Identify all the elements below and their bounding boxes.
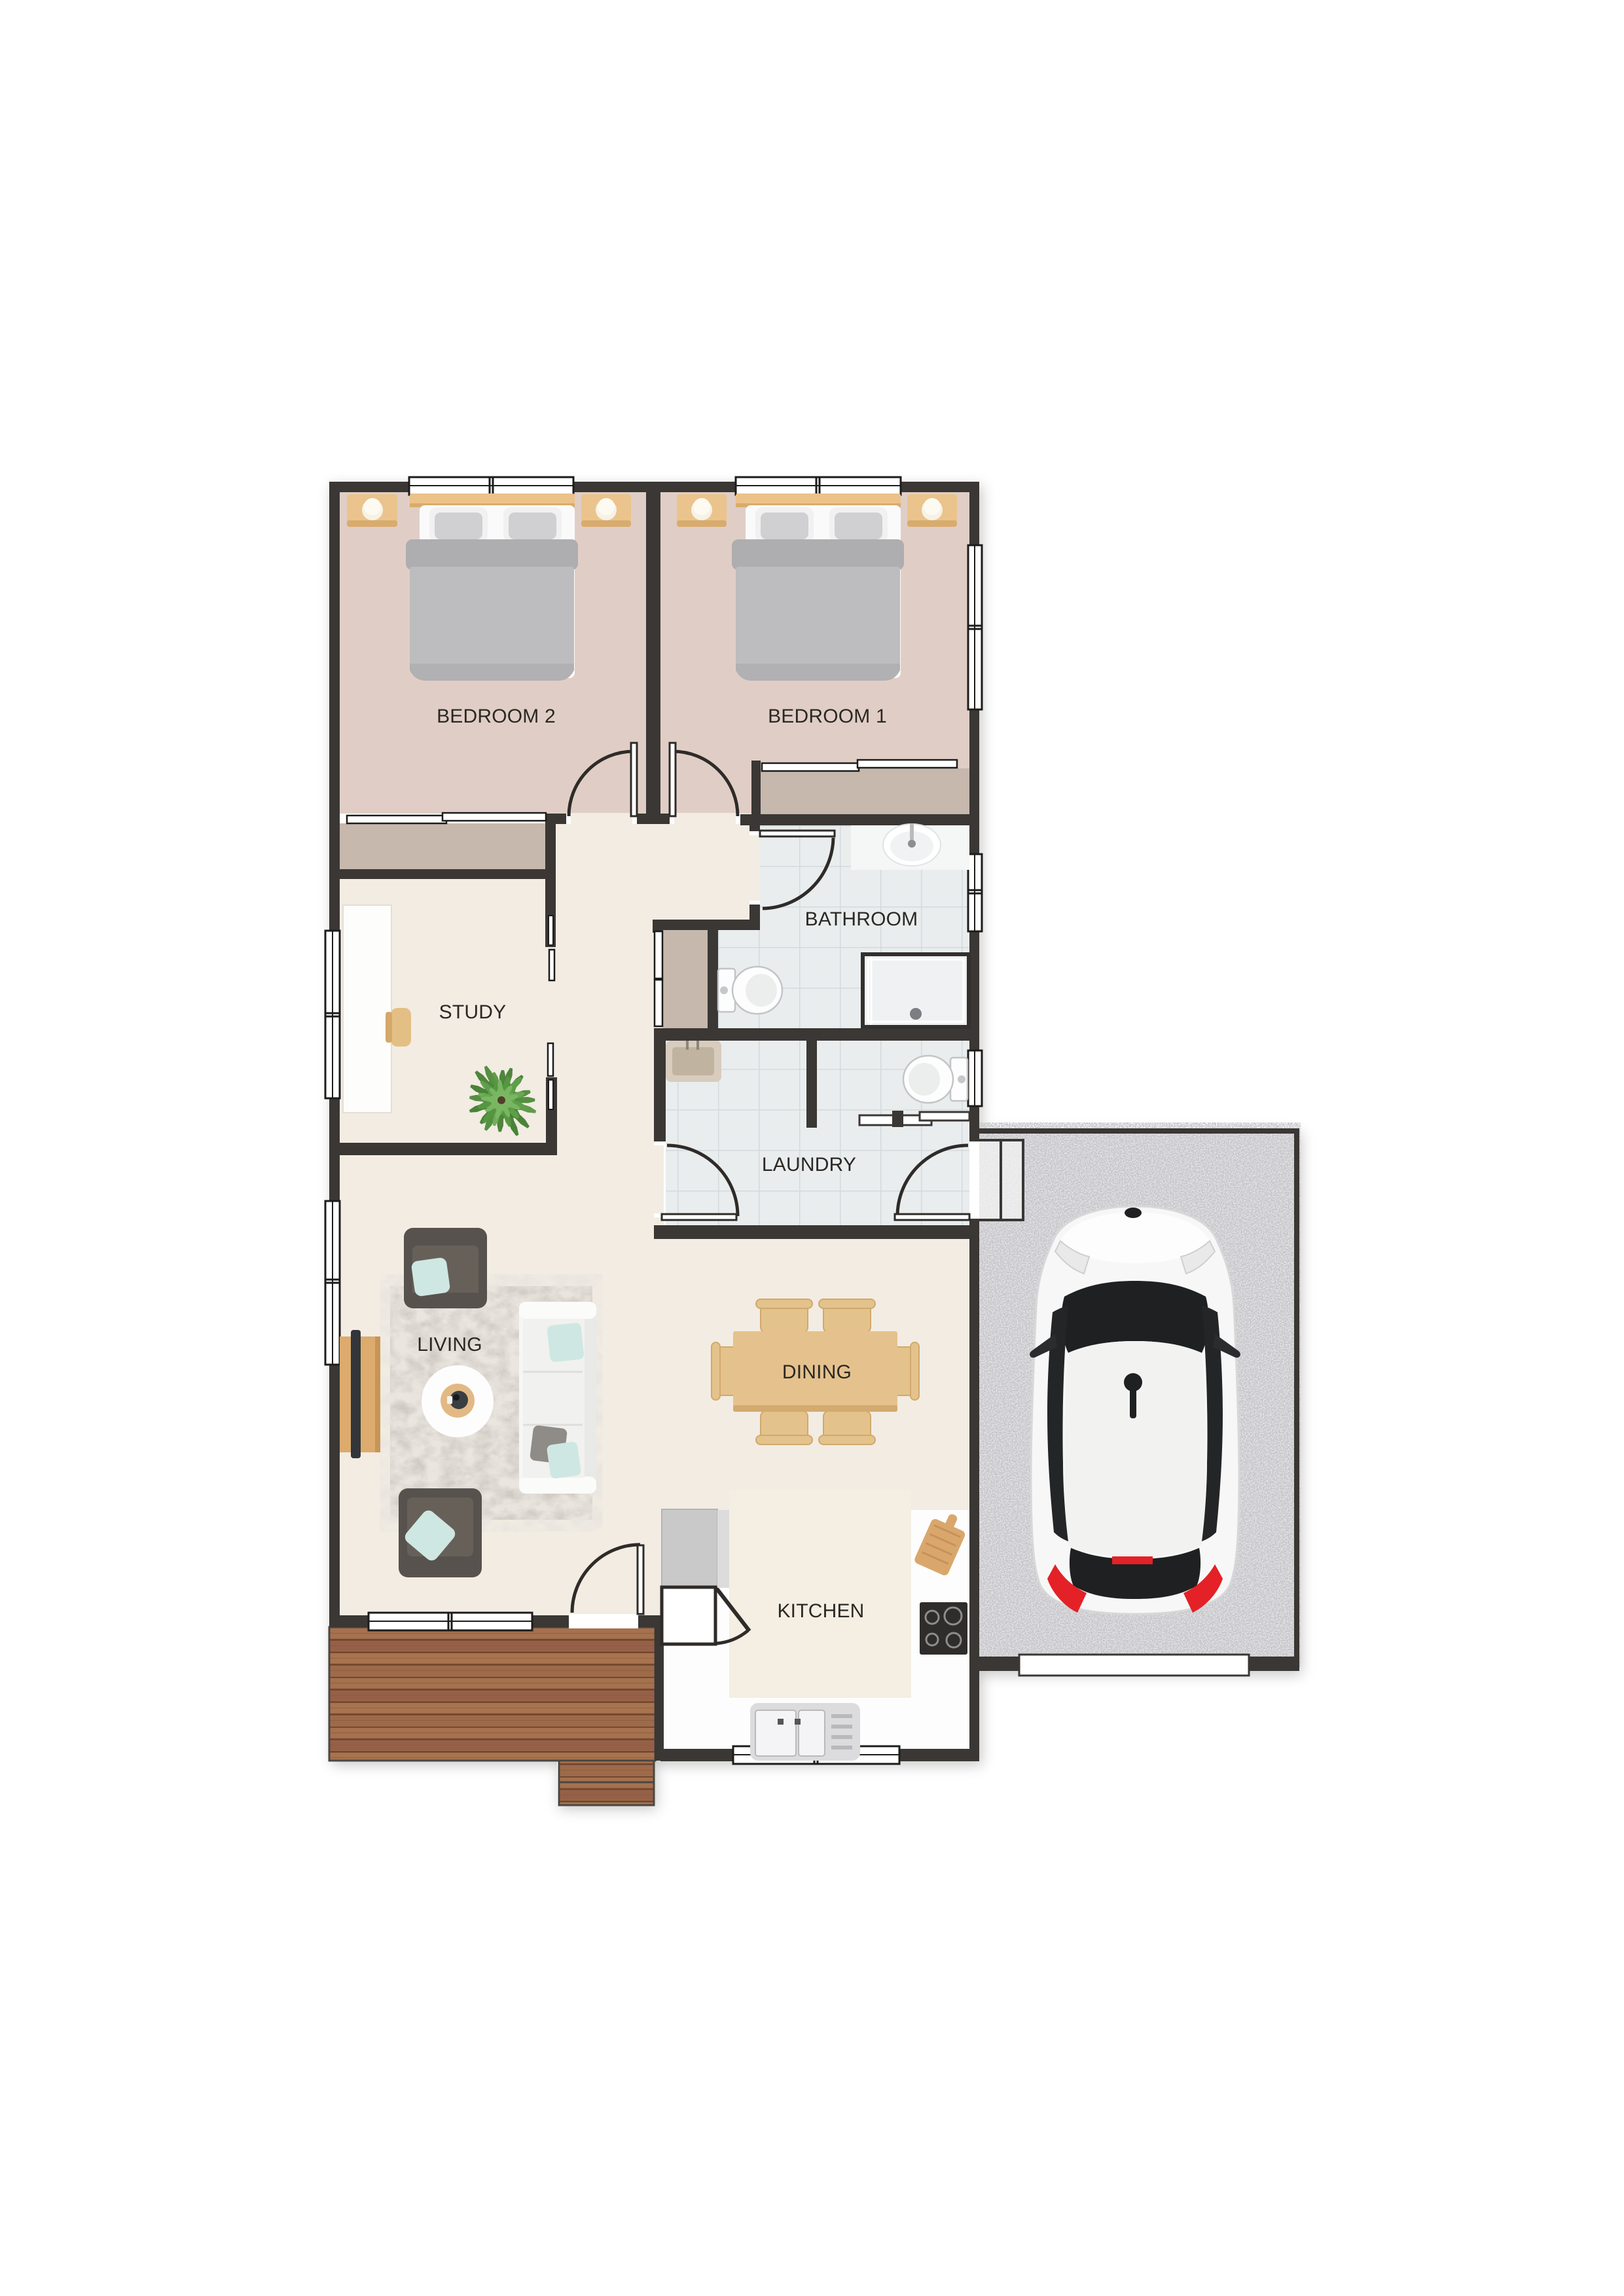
svg-text:BEDROOM 1: BEDROOM 1 — [768, 706, 887, 727]
svg-text:STUDY: STUDY — [439, 1001, 507, 1023]
svg-text:BATHROOM: BATHROOM — [805, 908, 918, 930]
svg-text:DINING: DINING — [782, 1361, 852, 1383]
svg-text:BEDROOM 2: BEDROOM 2 — [437, 706, 556, 727]
svg-text:KITCHEN: KITCHEN — [777, 1600, 864, 1622]
svg-text:LAUNDRY: LAUNDRY — [762, 1154, 856, 1175]
svg-text:LIVING: LIVING — [417, 1334, 482, 1355]
